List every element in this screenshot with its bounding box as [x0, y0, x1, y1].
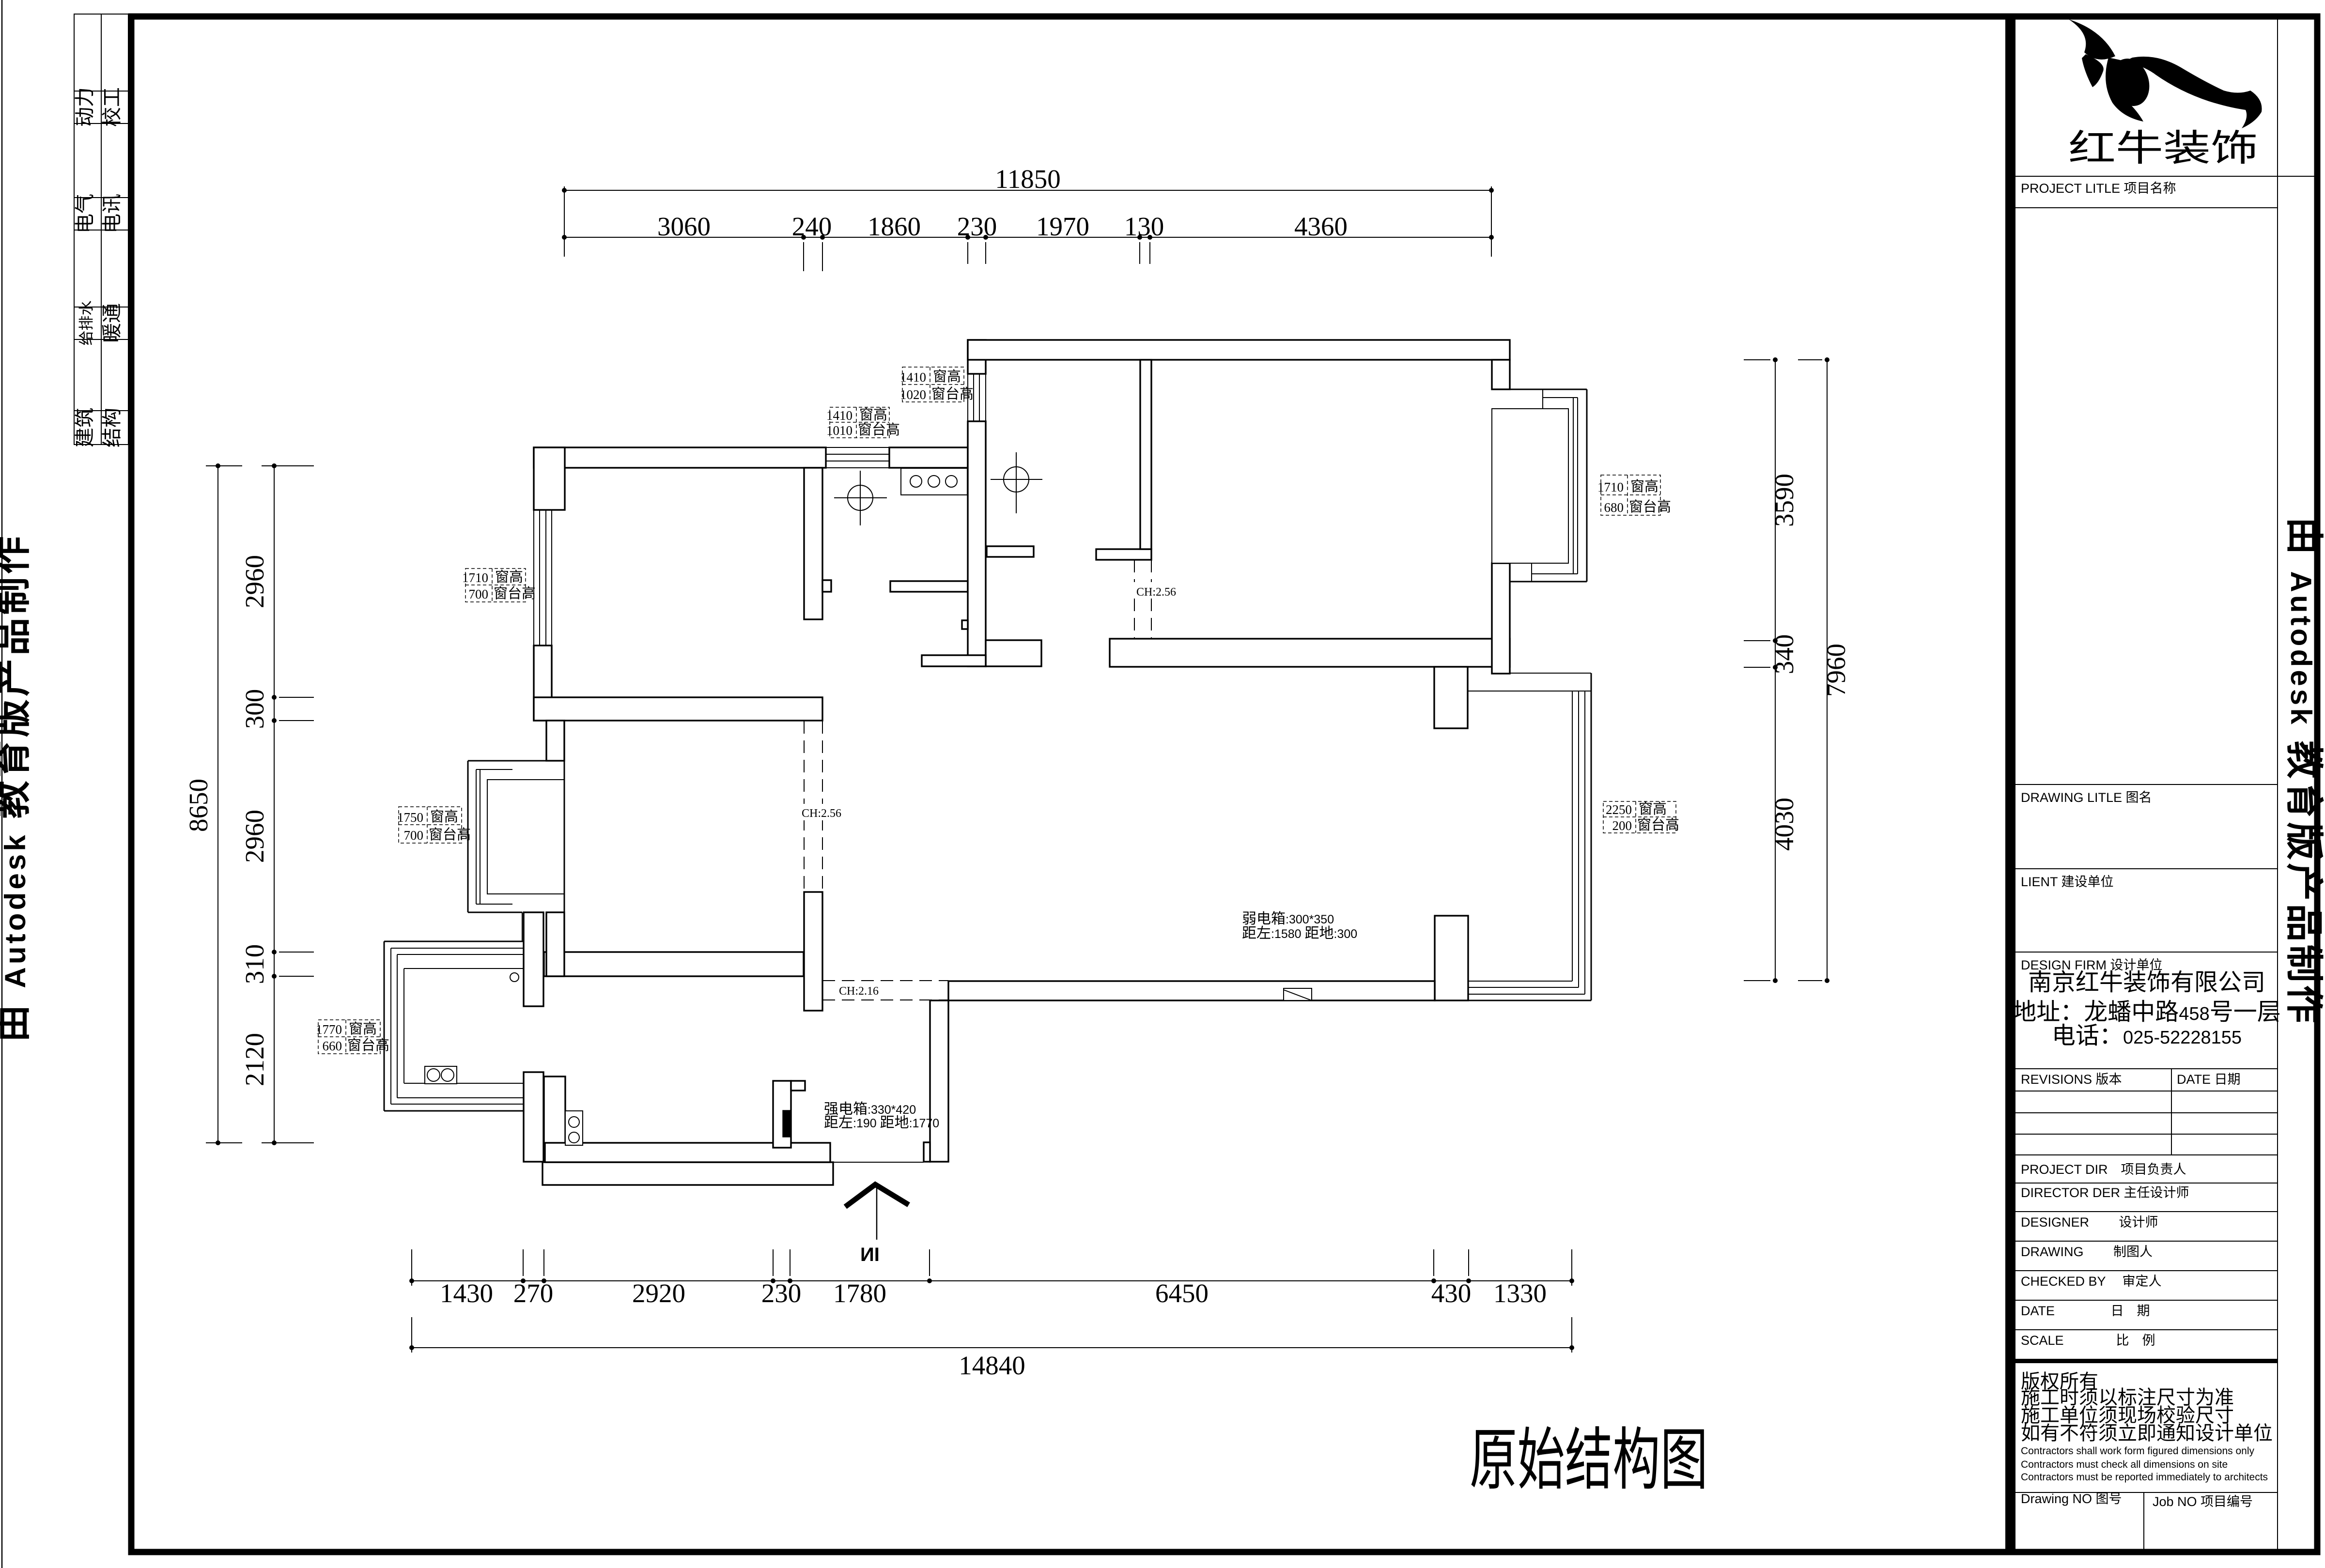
svg-text:红牛装饰: 红牛装饰 [2068, 128, 2258, 169]
svg-text:1860: 1860 [868, 212, 921, 241]
svg-text:动力: 动力 [74, 87, 96, 127]
svg-text:14840: 14840 [959, 1351, 1025, 1380]
svg-text:CHECKED BY 审定人: CHECKED BY 审定人 [2021, 1274, 2162, 1289]
svg-text:REVISIONS 版本: REVISIONS 版本 [2021, 1072, 2122, 1087]
svg-text:660: 660 [323, 1039, 342, 1053]
svg-text:Drawing NO 图号: Drawing NO 图号 [2021, 1491, 2122, 1506]
svg-text:距左:1580 距地:300: 距左:1580 距地:300 [1242, 925, 1357, 941]
svg-text:1330: 1330 [1493, 1278, 1547, 1308]
svg-text:LIENT 建设单位: LIENT 建设单位 [2021, 875, 2114, 889]
svg-text:1410: 1410 [826, 408, 852, 423]
svg-text:700: 700 [469, 587, 489, 601]
svg-text:窗高: 窗高 [933, 369, 961, 384]
svg-text:南京红牛装饰有限公司: 南京红牛装饰有限公司 [2028, 969, 2265, 996]
svg-text:窗高: 窗高 [495, 569, 523, 585]
svg-text:2250: 2250 [1606, 802, 1632, 817]
svg-text:DIRECTOR DER 主任设计师: DIRECTOR DER 主任设计师 [2021, 1185, 2189, 1200]
svg-text:DESIGNER 设计师: DESIGNER 设计师 [2021, 1215, 2158, 1230]
svg-text:1710: 1710 [1597, 480, 1624, 494]
svg-text:2920: 2920 [632, 1278, 685, 1308]
svg-text:窗台高: 窗台高 [494, 585, 536, 601]
svg-text:240: 240 [792, 212, 832, 241]
svg-text:310: 310 [240, 944, 269, 984]
svg-text:2960: 2960 [240, 810, 269, 863]
svg-text:11850: 11850 [995, 164, 1060, 194]
svg-text:270: 270 [513, 1278, 554, 1308]
svg-text:结构: 结构 [101, 408, 123, 447]
svg-text:暖通: 暖通 [101, 303, 123, 343]
svg-text:电气: 电气 [74, 194, 96, 233]
svg-text:DATE 日 期: DATE 日 期 [2021, 1304, 2150, 1318]
svg-text:1780: 1780 [833, 1278, 886, 1308]
svg-text:700: 700 [404, 828, 424, 843]
svg-text:340: 340 [1769, 634, 1799, 675]
svg-text:300: 300 [240, 689, 269, 729]
svg-text:距左:190 距地:1770: 距左:190 距地:1770 [824, 1115, 939, 1131]
svg-text:DATE 日期: DATE 日期 [2177, 1072, 2241, 1087]
svg-text:窗台高: 窗台高 [1637, 817, 1679, 833]
svg-text:1750: 1750 [397, 810, 423, 825]
svg-text:Contractors must check all: Contractors must check all dimensions on… [2021, 1459, 2228, 1470]
svg-text:1710: 1710 [462, 570, 488, 585]
svg-text:PROJECT LITLE 项目名称: PROJECT LITLE 项目名称 [2021, 181, 2176, 196]
svg-text:电讯: 电讯 [101, 194, 123, 233]
svg-text:校工: 校工 [101, 87, 123, 127]
svg-text:1430: 1430 [440, 1278, 493, 1308]
svg-text:230: 230 [761, 1278, 802, 1308]
svg-text:窗台高: 窗台高 [931, 386, 974, 402]
svg-text:2120: 2120 [240, 1033, 269, 1086]
svg-text:DRAWING LITLE 图名: DRAWING LITLE 图名 [2021, 790, 2152, 805]
svg-text:CH:2.16: CH:2.16 [839, 985, 879, 998]
svg-text:窗高: 窗高 [430, 809, 458, 825]
svg-text:建筑: 建筑 [74, 408, 96, 447]
svg-text:窗高: 窗高 [1630, 478, 1658, 494]
svg-text:SCALE 比 例: SCALE 比 例 [2021, 1333, 2155, 1348]
svg-text:窗高: 窗高 [1639, 801, 1667, 817]
svg-text:窗高: 窗高 [349, 1021, 377, 1037]
svg-text:1970: 1970 [1036, 212, 1089, 241]
svg-text:原始结构图: 原始结构图 [1470, 1422, 1708, 1498]
svg-text:200: 200 [1612, 818, 1632, 833]
svg-text:4360: 4360 [1294, 212, 1348, 241]
svg-text:6450: 6450 [1155, 1278, 1209, 1308]
svg-text:窗台高: 窗台高 [1629, 499, 1671, 515]
svg-text:3060: 3060 [657, 212, 711, 241]
svg-text:130: 130 [1124, 212, 1164, 241]
svg-text:地址：龙蟠中路458号一层: 地址：龙蟠中路458号一层 [2013, 999, 2280, 1025]
svg-text:230: 230 [957, 212, 997, 241]
svg-text:CH:2.56: CH:2.56 [802, 807, 841, 820]
svg-text:Job NO 项目编号: Job NO 项目编号 [2153, 1494, 2253, 1509]
svg-text:680: 680 [1604, 500, 1624, 515]
svg-text:ИI: ИI [860, 1244, 880, 1265]
svg-text:窗台高: 窗台高 [347, 1037, 389, 1053]
svg-text:430: 430 [1431, 1278, 1472, 1308]
svg-text:Contractors must be reporte: Contractors must be reported immediately… [2021, 1472, 2268, 1483]
svg-text:CH:2.56: CH:2.56 [1136, 586, 1176, 599]
svg-text:3590: 3590 [1769, 474, 1799, 527]
svg-text:给排水: 给排水 [78, 301, 95, 346]
svg-text:4030: 4030 [1769, 798, 1799, 851]
svg-text:2960: 2960 [240, 555, 269, 608]
svg-text:窗高: 窗高 [859, 407, 887, 423]
svg-text:窗台高: 窗台高 [858, 422, 900, 438]
svg-text:窗台高: 窗台高 [429, 827, 471, 843]
svg-text:1010: 1010 [826, 423, 852, 438]
svg-text:1770: 1770 [316, 1022, 342, 1037]
svg-text:1410: 1410 [900, 370, 926, 384]
svg-text:如有不符须立即通知设计单位: 如有不符须立即通知设计单位 [2021, 1423, 2273, 1444]
svg-text:DRAWING 制图人: DRAWING 制图人 [2021, 1245, 2153, 1259]
svg-text:7960: 7960 [1821, 644, 1851, 697]
svg-text:弱电箱:300*350: 弱电箱:300*350 [1242, 911, 1334, 927]
svg-text:Contractors shall work form: Contractors shall work form figured dime… [2021, 1445, 2255, 1457]
svg-text:8650: 8650 [184, 779, 213, 832]
svg-text:1020: 1020 [900, 387, 926, 402]
svg-text:PROJECT DIR 项目负责人: PROJECT DIR 项目负责人 [2021, 1162, 2186, 1177]
